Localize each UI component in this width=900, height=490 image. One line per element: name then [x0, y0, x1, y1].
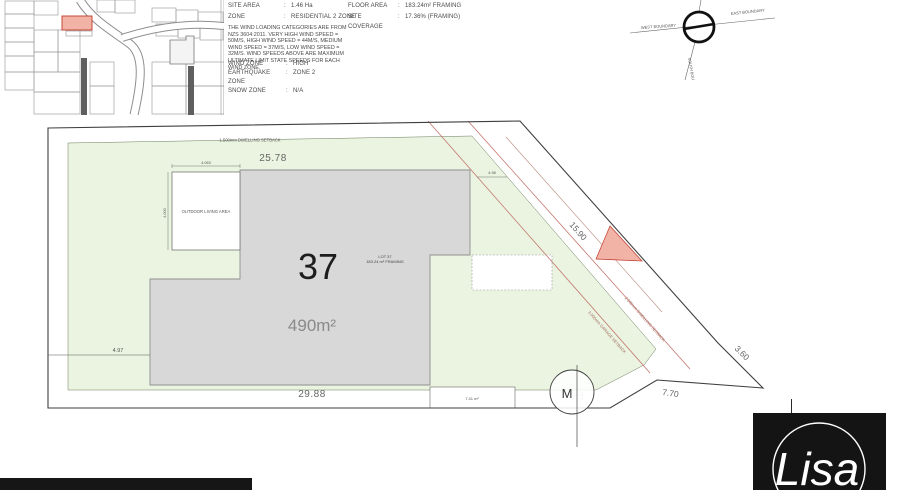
inset-dark-strip-right	[188, 66, 194, 115]
logo-text: Lisa	[775, 443, 859, 490]
lot-number: 37	[298, 246, 338, 287]
dim-mid: 4.98	[488, 171, 495, 175]
earthquake-zone-label: EARTHQUAKE ZONE	[228, 69, 286, 87]
earthquake-zone-value: ZONE 2	[293, 69, 315, 87]
coverage-table: FLOOR AREA : 183.24m² FRAMING SITE COVER…	[348, 1, 461, 33]
site-area-value: 1.46 Ha	[291, 1, 313, 12]
site-info-table: SITE AREA : 1.46 Ha ZONE : RESIDENTIAL 2…	[228, 1, 355, 22]
meter-label: M	[562, 386, 573, 401]
site-plan-sheet: SITE AREA : 1.46 Ha ZONE : RESIDENTIAL 2…	[0, 0, 900, 490]
outdoor-living-label: OUTDOOR LIVING AREA	[182, 209, 231, 214]
floor-area-value: 183.24m² FRAMING	[405, 1, 461, 12]
separator: :	[398, 1, 405, 12]
inset-building-outline	[170, 36, 194, 64]
dim-outdoor-left: 4.000	[163, 208, 167, 218]
separator: :	[398, 12, 405, 33]
site-area-row: SITE AREA : 1.46 Ha	[228, 1, 355, 12]
floor-area-label: FLOOR AREA	[348, 1, 398, 12]
lisa-logo-icon: Lisa	[753, 413, 886, 490]
dim-left: 4.97	[113, 348, 124, 354]
site-coverage-row: SITE COVERAGE : 17.36% (FRAMING)	[348, 12, 461, 33]
compass-east-label: EAST BOUNDARY	[731, 7, 766, 16]
wind-zone-row: WIND ZONE : HIGH	[228, 60, 315, 69]
compass-south-label: SOUTH BOUNDARY	[687, 57, 697, 80]
subdivision-inset-map	[2, 0, 224, 115]
snow-zone-row: SNOW ZONE : N/A	[228, 87, 315, 96]
building-step-dashed	[472, 255, 552, 290]
zone-value: RESIDENTIAL 2 ZONE	[291, 12, 355, 23]
logo-leader-line	[791, 399, 792, 413]
snow-zone-label: SNOW ZONE	[228, 87, 286, 96]
inset-dark-strip-left	[81, 58, 87, 115]
separator: :	[286, 60, 293, 69]
floor-area-row: FLOOR AREA : 183.24m² FRAMING	[348, 1, 461, 12]
brand-logo: Lisa	[753, 413, 886, 490]
wind-zone-label: WIND ZONE	[228, 60, 286, 69]
snow-zone-value: N/A	[293, 87, 303, 96]
separator: :	[284, 1, 291, 12]
dim-top: 25.78	[259, 153, 287, 164]
dim-bottom: 29.88	[298, 389, 326, 400]
setback-top-label: 1.500mm DWELLING SETBACK	[219, 138, 280, 143]
zone-row: ZONE : RESIDENTIAL 2 ZONE	[228, 12, 355, 23]
site-coverage-value: 17.36% (FRAMING)	[405, 12, 460, 33]
site-coverage-label: SITE COVERAGE	[348, 12, 398, 33]
separator: :	[286, 69, 293, 87]
lot-detail-line2: 183.24 m² FRAMING	[366, 259, 404, 264]
footer-bar	[0, 478, 252, 490]
zone-table: WIND ZONE : HIGH EARTHQUAKE ZONE : ZONE …	[228, 60, 315, 96]
site-area-label: SITE AREA	[228, 1, 284, 12]
zone-label: ZONE	[228, 12, 284, 23]
wind-zone-value: HIGH	[293, 60, 308, 69]
separator: :	[286, 87, 293, 96]
dim-right-short: 3.60	[733, 343, 752, 362]
dim-outdoor-top: 4.063	[201, 161, 211, 165]
lot-area: 490m²	[288, 316, 337, 335]
compass-icon: WEST BOUNDARY EAST BOUNDARY SOUTH BOUNDA…	[615, 0, 785, 80]
separator: :	[284, 12, 291, 23]
earthquake-zone-row: EARTHQUAKE ZONE : ZONE 2	[228, 69, 315, 87]
site-plan-drawing: OUTDOOR LIVING AREA 4.063 4.000 7.41 m² …	[40, 113, 780, 460]
inset-highlighted-lot-37	[62, 16, 92, 30]
dim-bottom-right: 7.70	[662, 387, 680, 400]
porch-area-label: 7.41 m²	[465, 396, 479, 401]
dim-diagonal: 15.90	[567, 220, 589, 243]
